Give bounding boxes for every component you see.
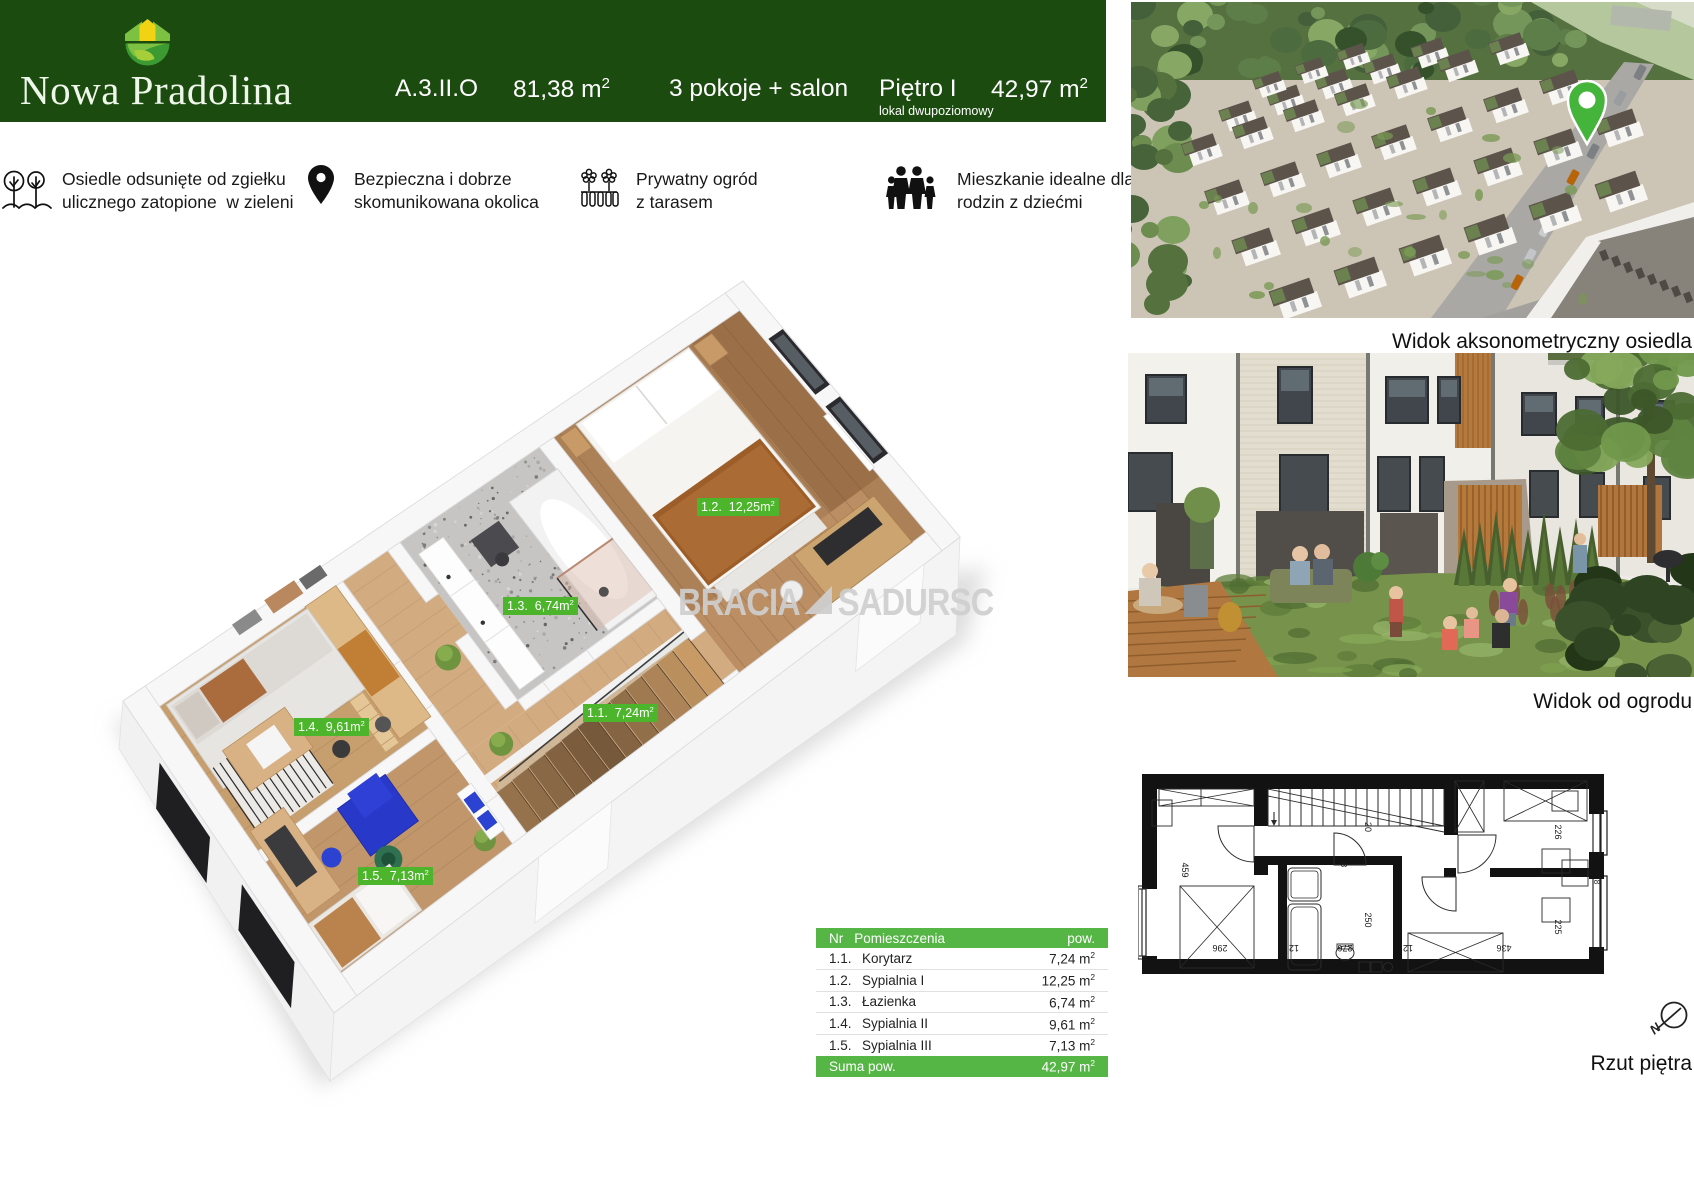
svg-text:225: 225 [1553, 919, 1563, 934]
svg-text:276: 276 [1337, 943, 1352, 953]
svg-text:8: 8 [1339, 863, 1348, 868]
svg-text:250: 250 [1363, 912, 1373, 927]
svg-text:436: 436 [1496, 943, 1511, 953]
svg-text:12: 12 [1403, 943, 1413, 953]
svg-text:296: 296 [1212, 943, 1227, 953]
svg-text:226: 226 [1553, 824, 1563, 839]
svg-text:N: N [1647, 1019, 1664, 1037]
svg-text:459: 459 [1180, 862, 1190, 877]
svg-text:20: 20 [1363, 822, 1373, 832]
svg-text:8: 8 [1592, 880, 1601, 885]
svg-text:12: 12 [1289, 943, 1299, 953]
